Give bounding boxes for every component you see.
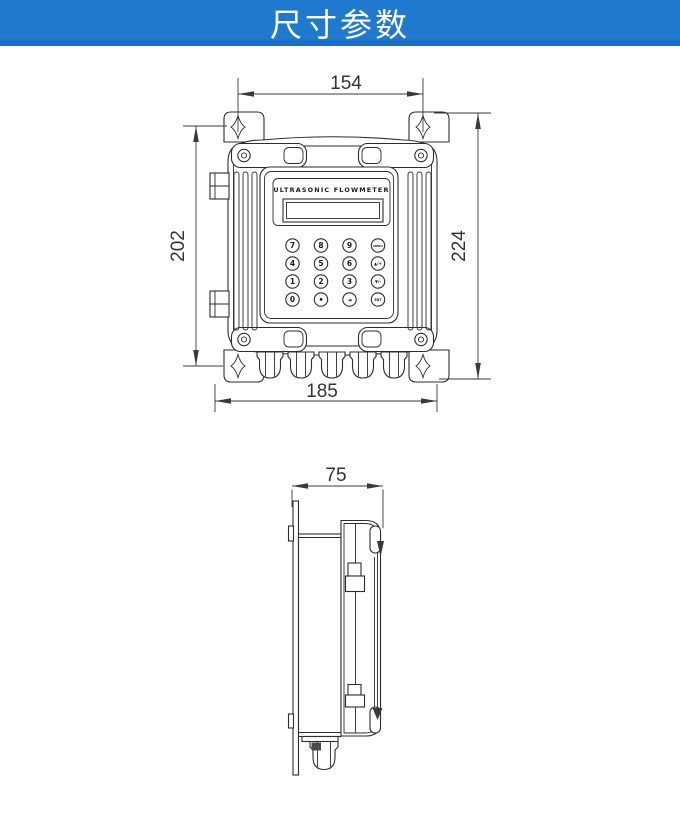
keypad-label: 0: [290, 295, 295, 304]
keypad-label: MENU: [373, 244, 383, 248]
dim-label-185: 185: [306, 381, 338, 402]
dim-label-154: 154: [330, 73, 362, 94]
mount-tab-top-left: [224, 112, 264, 142]
device-label: ULTRASONIC FLOWMETER: [273, 186, 389, 194]
wall-plate-tab-top: [289, 526, 294, 541]
cable-gland: [350, 352, 376, 378]
keypad-label: 3: [347, 277, 352, 286]
dimension-drawing: ULTRASONIC FLOWMETER 7 8 9 MENU 4 5 6: [0, 0, 680, 825]
cable-gland: [257, 352, 283, 378]
hinge-barrel-lower: [210, 291, 229, 317]
keypad-label: ▼/-: [375, 279, 382, 284]
keypad-label: 4: [290, 259, 295, 268]
keypad-label: 2: [318, 277, 323, 286]
corner-hinge-top-right: [359, 144, 434, 168]
dim-mount-hole-spacing: 154: [238, 73, 423, 132]
keypad-label: ENT: [374, 298, 382, 302]
base-bottom-flange: [302, 737, 338, 742]
keypad-label: ▲/+: [374, 261, 382, 266]
side-cable-gland: [310, 742, 338, 770]
keypad-label: •: [318, 295, 323, 304]
dim-overall-height: 224: [434, 113, 491, 379]
keypad-label: 1: [290, 277, 295, 286]
product-dimension-page: 尺寸参数: [0, 0, 680, 825]
mount-tab-bottom-right: [409, 350, 449, 382]
corner-hinge-bottom-right: [359, 328, 434, 352]
dim-label-224: 224: [449, 230, 470, 262]
keypad-label: 7: [290, 241, 295, 250]
corner-hinge-bottom-left: [232, 328, 307, 352]
side-view: 75: [289, 465, 385, 775]
dim-mount-hole-height: 202: [168, 126, 227, 366]
front-view: ULTRASONIC FLOWMETER 7 8 9 MENU 4 5 6: [168, 73, 491, 412]
hinge-barrel-upper: [210, 173, 229, 199]
keypad-label: 8: [318, 241, 323, 250]
cable-gland: [381, 352, 407, 378]
mount-tab-top-right: [409, 112, 449, 142]
keypad-label: 5: [318, 259, 323, 268]
dim-label-202: 202: [168, 230, 189, 262]
keypad-label: 9: [347, 241, 352, 250]
wall-plate: [293, 501, 299, 775]
keypad-label: ◄: [348, 297, 352, 303]
gland-clamp: [312, 743, 322, 751]
cable-gland: [319, 352, 345, 378]
cable-glands: [257, 352, 407, 378]
corner-hinge-top-left: [232, 144, 307, 168]
cable-gland: [288, 352, 314, 378]
keypad-label: 6: [347, 259, 352, 268]
dim-depth: 75: [292, 465, 383, 528]
base-box: [299, 534, 342, 737]
dim-label-75: 75: [325, 465, 346, 486]
dim-body-width: 185: [215, 381, 437, 412]
wall-plate-tab-bottom: [289, 714, 294, 728]
